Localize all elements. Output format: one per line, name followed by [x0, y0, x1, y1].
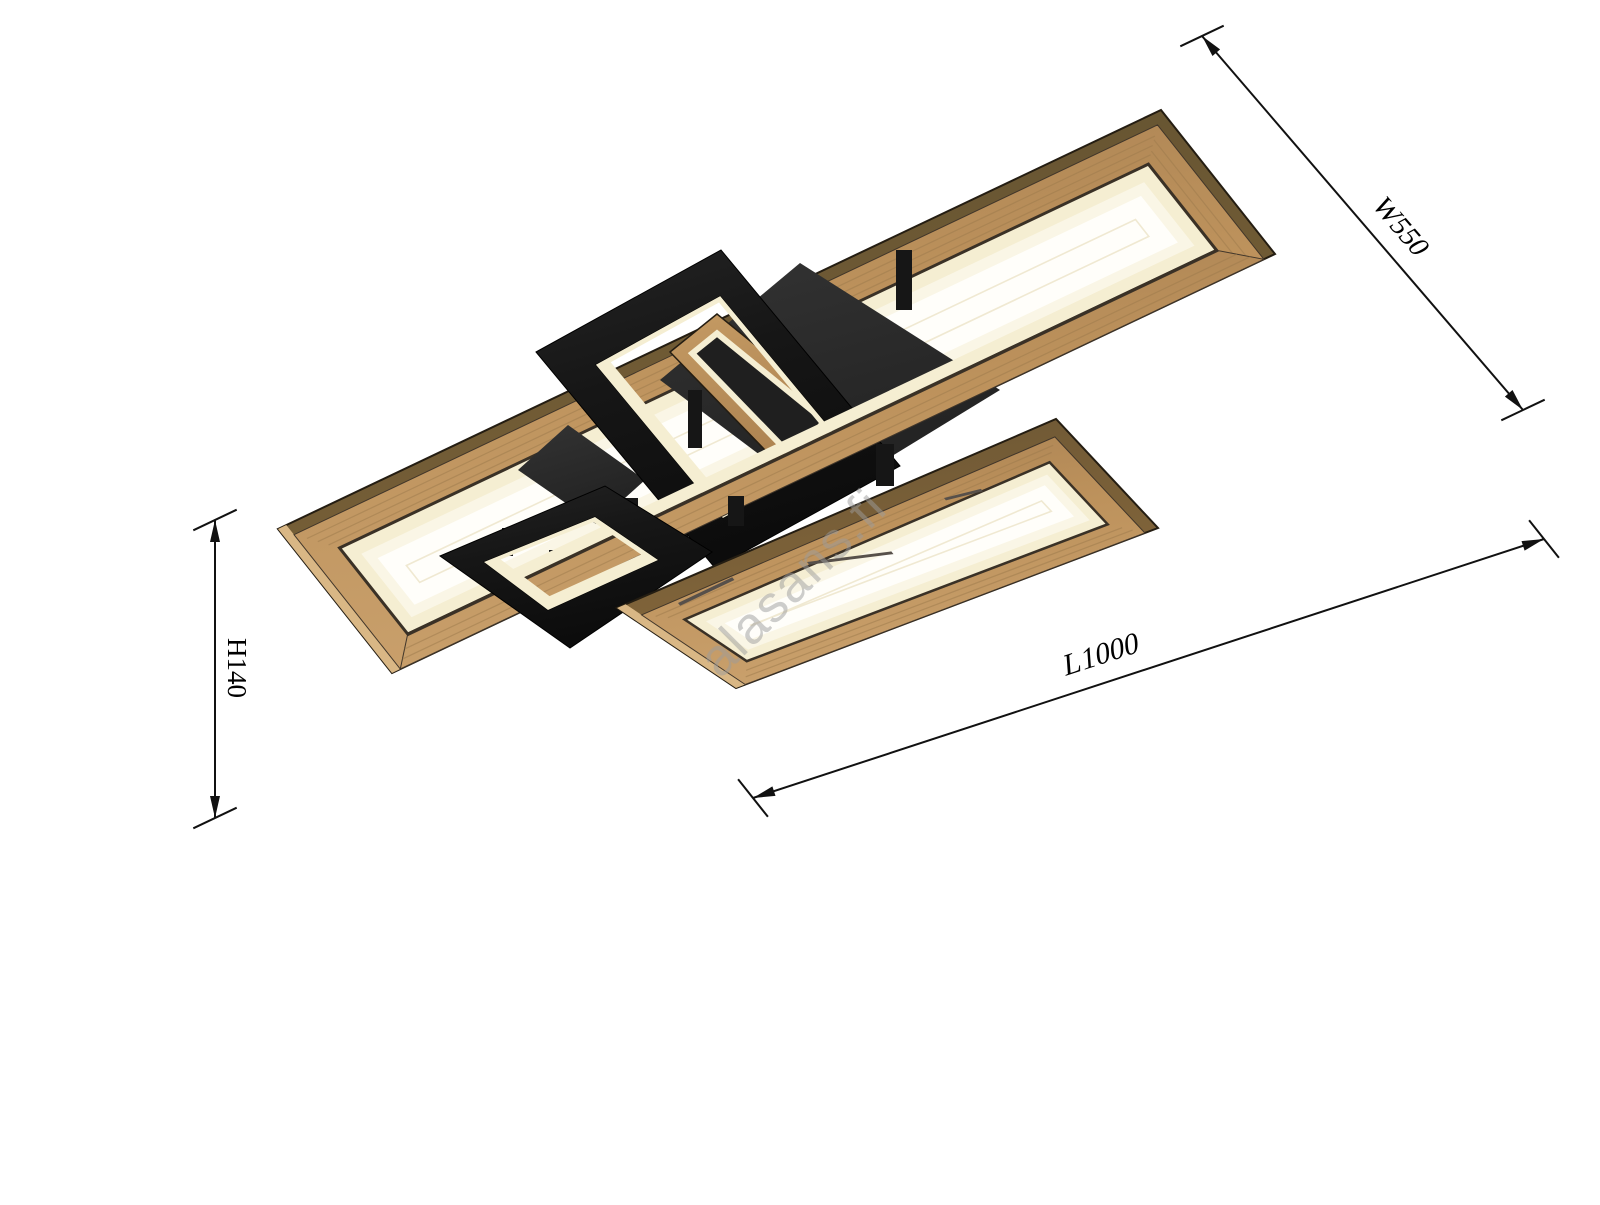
svg-text:W550: W550: [1365, 193, 1437, 260]
svg-text:H140: H140: [222, 638, 252, 698]
